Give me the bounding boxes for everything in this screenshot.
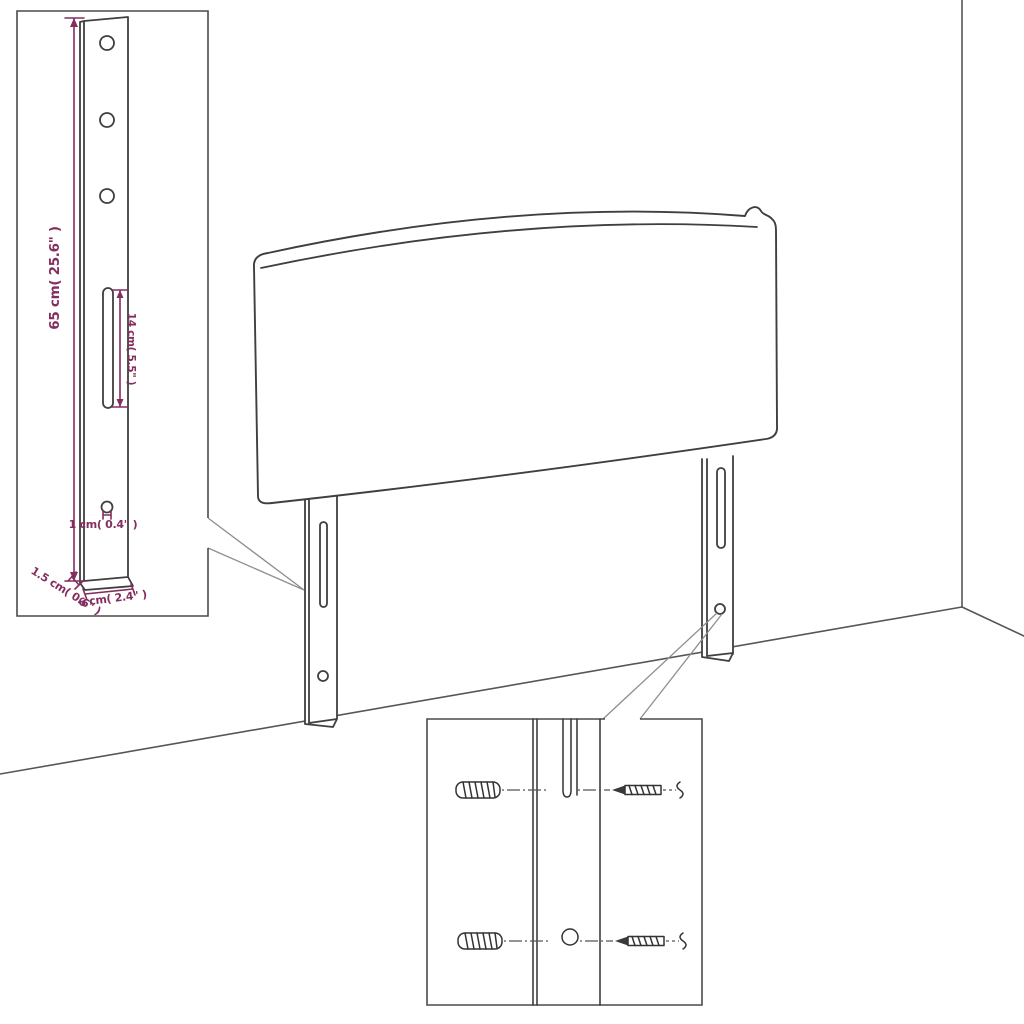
assembly-diagram: 65 cm( 25.6" ) 14 cm( 5.5" ) 1 cm( 0.4" …	[0, 0, 1024, 1024]
mounting-hole	[562, 929, 578, 945]
callout-wedge-left	[208, 518, 304, 590]
slot-length-label: 14 cm( 5.5" )	[125, 313, 137, 386]
leg-front-view	[80, 17, 133, 590]
wall-anchor-icon	[458, 933, 502, 949]
leg-detail-inset: 65 cm( 25.6" ) 14 cm( 5.5" ) 1 cm( 0.4" …	[17, 11, 208, 618]
screws-detail-inset	[427, 719, 702, 1005]
hole-diameter-label: 1 cm( 0.4" )	[69, 518, 138, 531]
headboard-panel	[254, 207, 777, 503]
floor-line-right	[962, 607, 1024, 636]
headboard-left-leg	[305, 487, 337, 727]
leg-height-label: 65 cm( 25.6" )	[47, 226, 63, 330]
diagram-canvas: 65 cm( 25.6" ) 14 cm( 5.5" ) 1 cm( 0.4" …	[0, 0, 1024, 1024]
wall-anchor-icon	[456, 782, 500, 798]
headboard-right-leg	[702, 456, 733, 661]
